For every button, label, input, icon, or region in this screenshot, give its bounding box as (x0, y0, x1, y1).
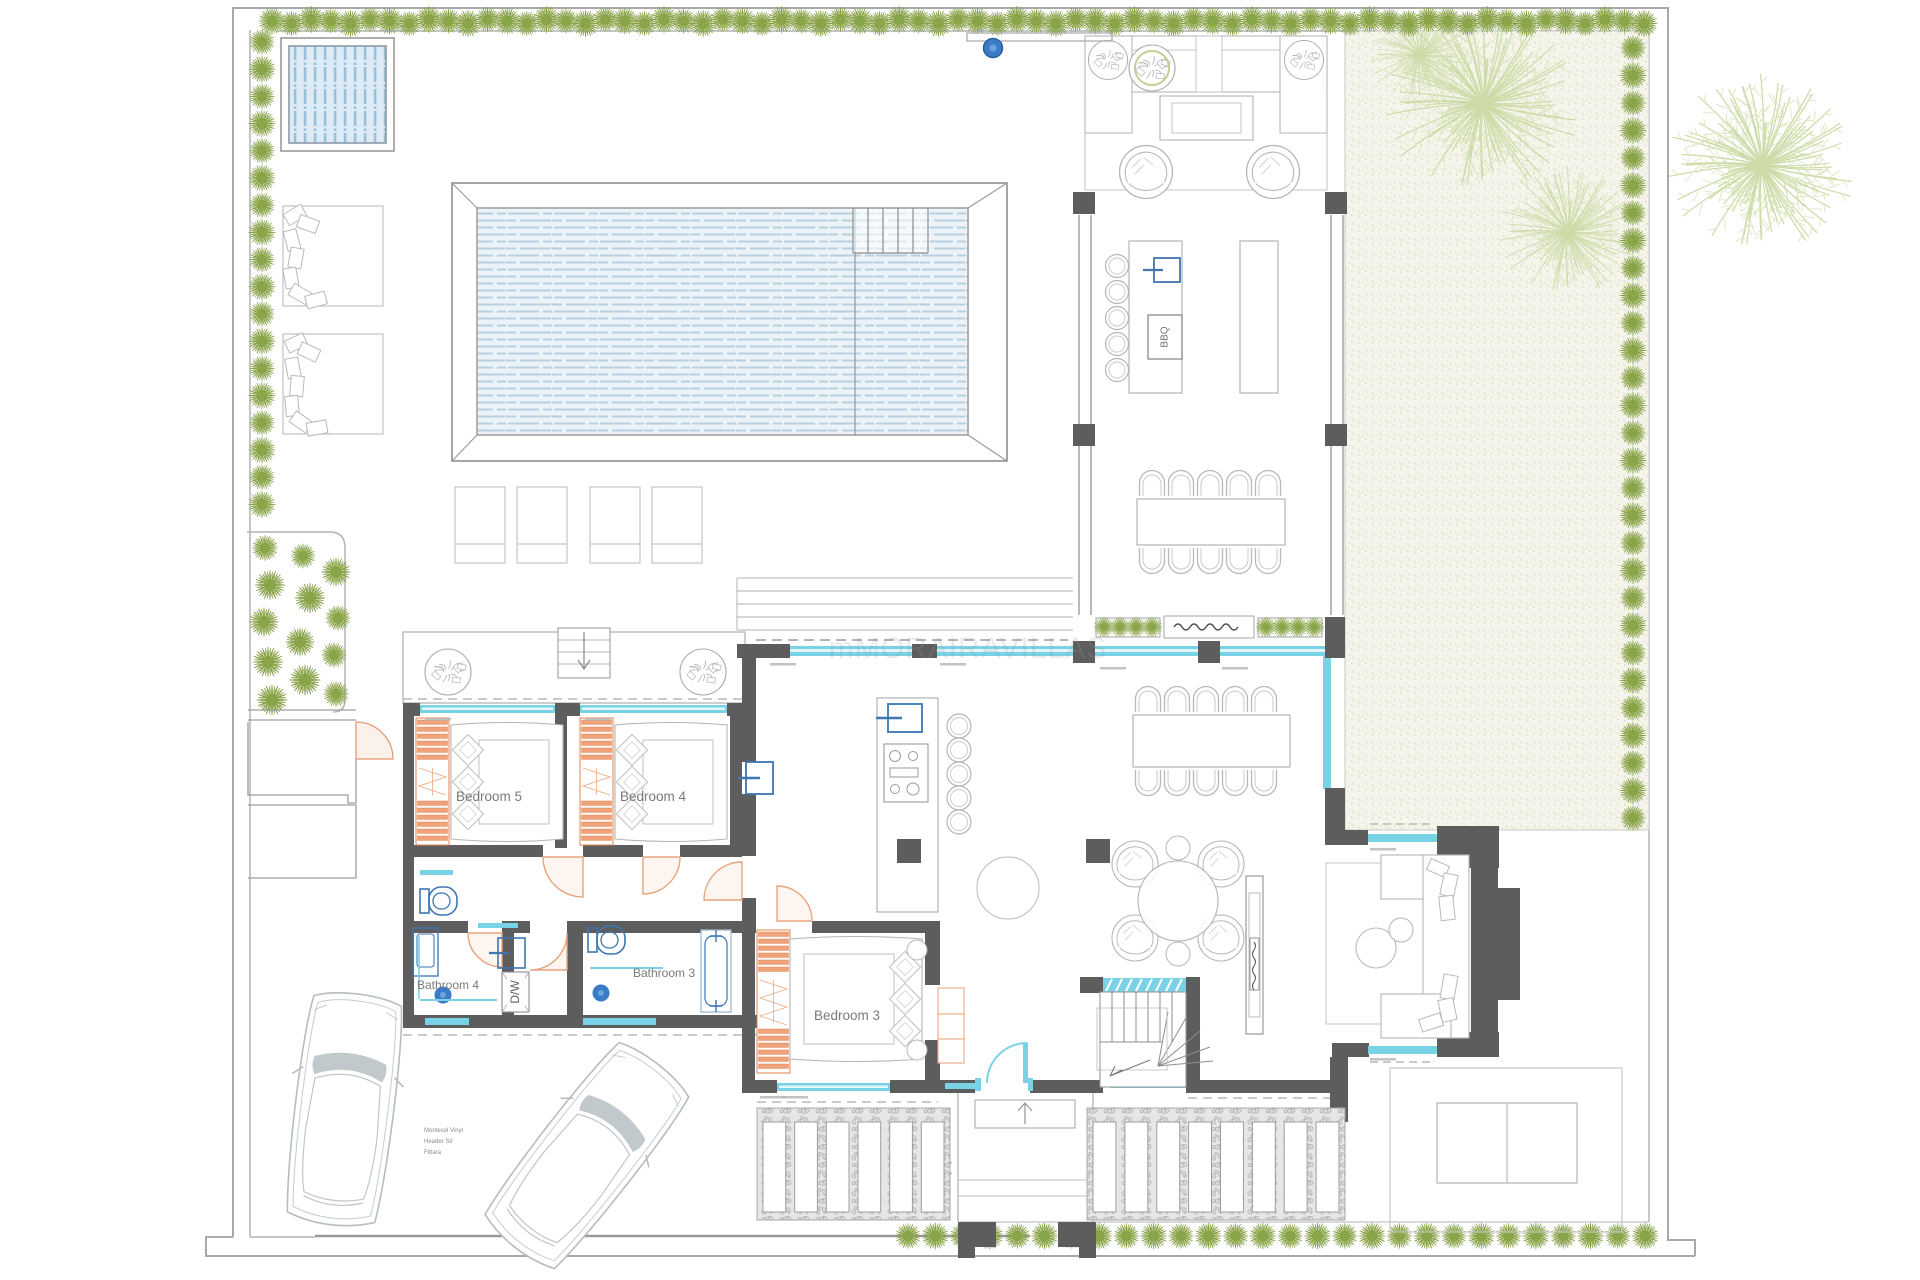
svg-text:Bedroom 4: Bedroom 4 (620, 789, 687, 804)
svg-text:Fittara: Fittara (424, 1150, 442, 1156)
svg-text:Bedroom 5: Bedroom 5 (456, 789, 522, 804)
svg-text:Bedroom 3: Bedroom 3 (814, 1008, 880, 1023)
svg-text:mMORAIRAVILLAS: mMORAIRAVILLAS (829, 632, 1108, 665)
svg-text:D/W: D/W (508, 980, 522, 1004)
svg-text:BBQ: BBQ (1160, 326, 1171, 347)
svg-text:Header Str: Header Str (424, 1139, 453, 1145)
svg-text:Montesol Vinyl: Montesol Vinyl (424, 1128, 463, 1134)
svg-text:Bathroom 3: Bathroom 3 (633, 966, 695, 980)
svg-text:Bathroom 4: Bathroom 4 (417, 978, 479, 992)
